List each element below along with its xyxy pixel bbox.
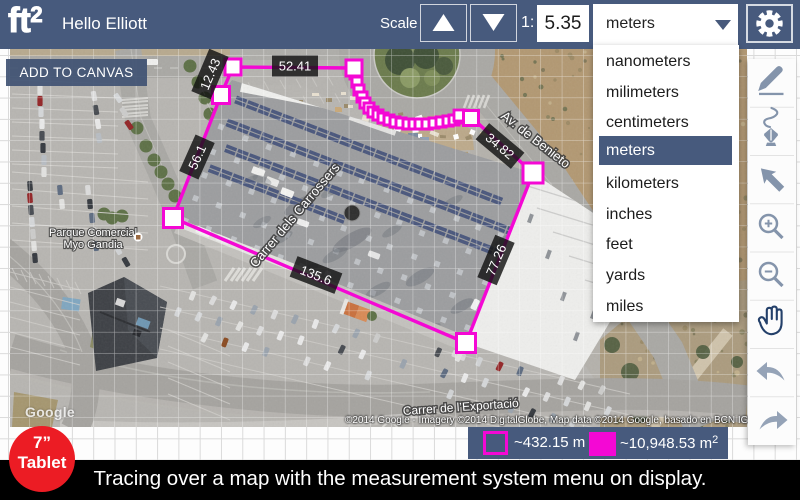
svg-text:Myo Gandia: Myo Gandia (63, 239, 123, 251)
svg-text:52.41: 52.41 (279, 59, 312, 74)
svg-text:Parque Comercial: Parque Comercial (49, 227, 137, 239)
